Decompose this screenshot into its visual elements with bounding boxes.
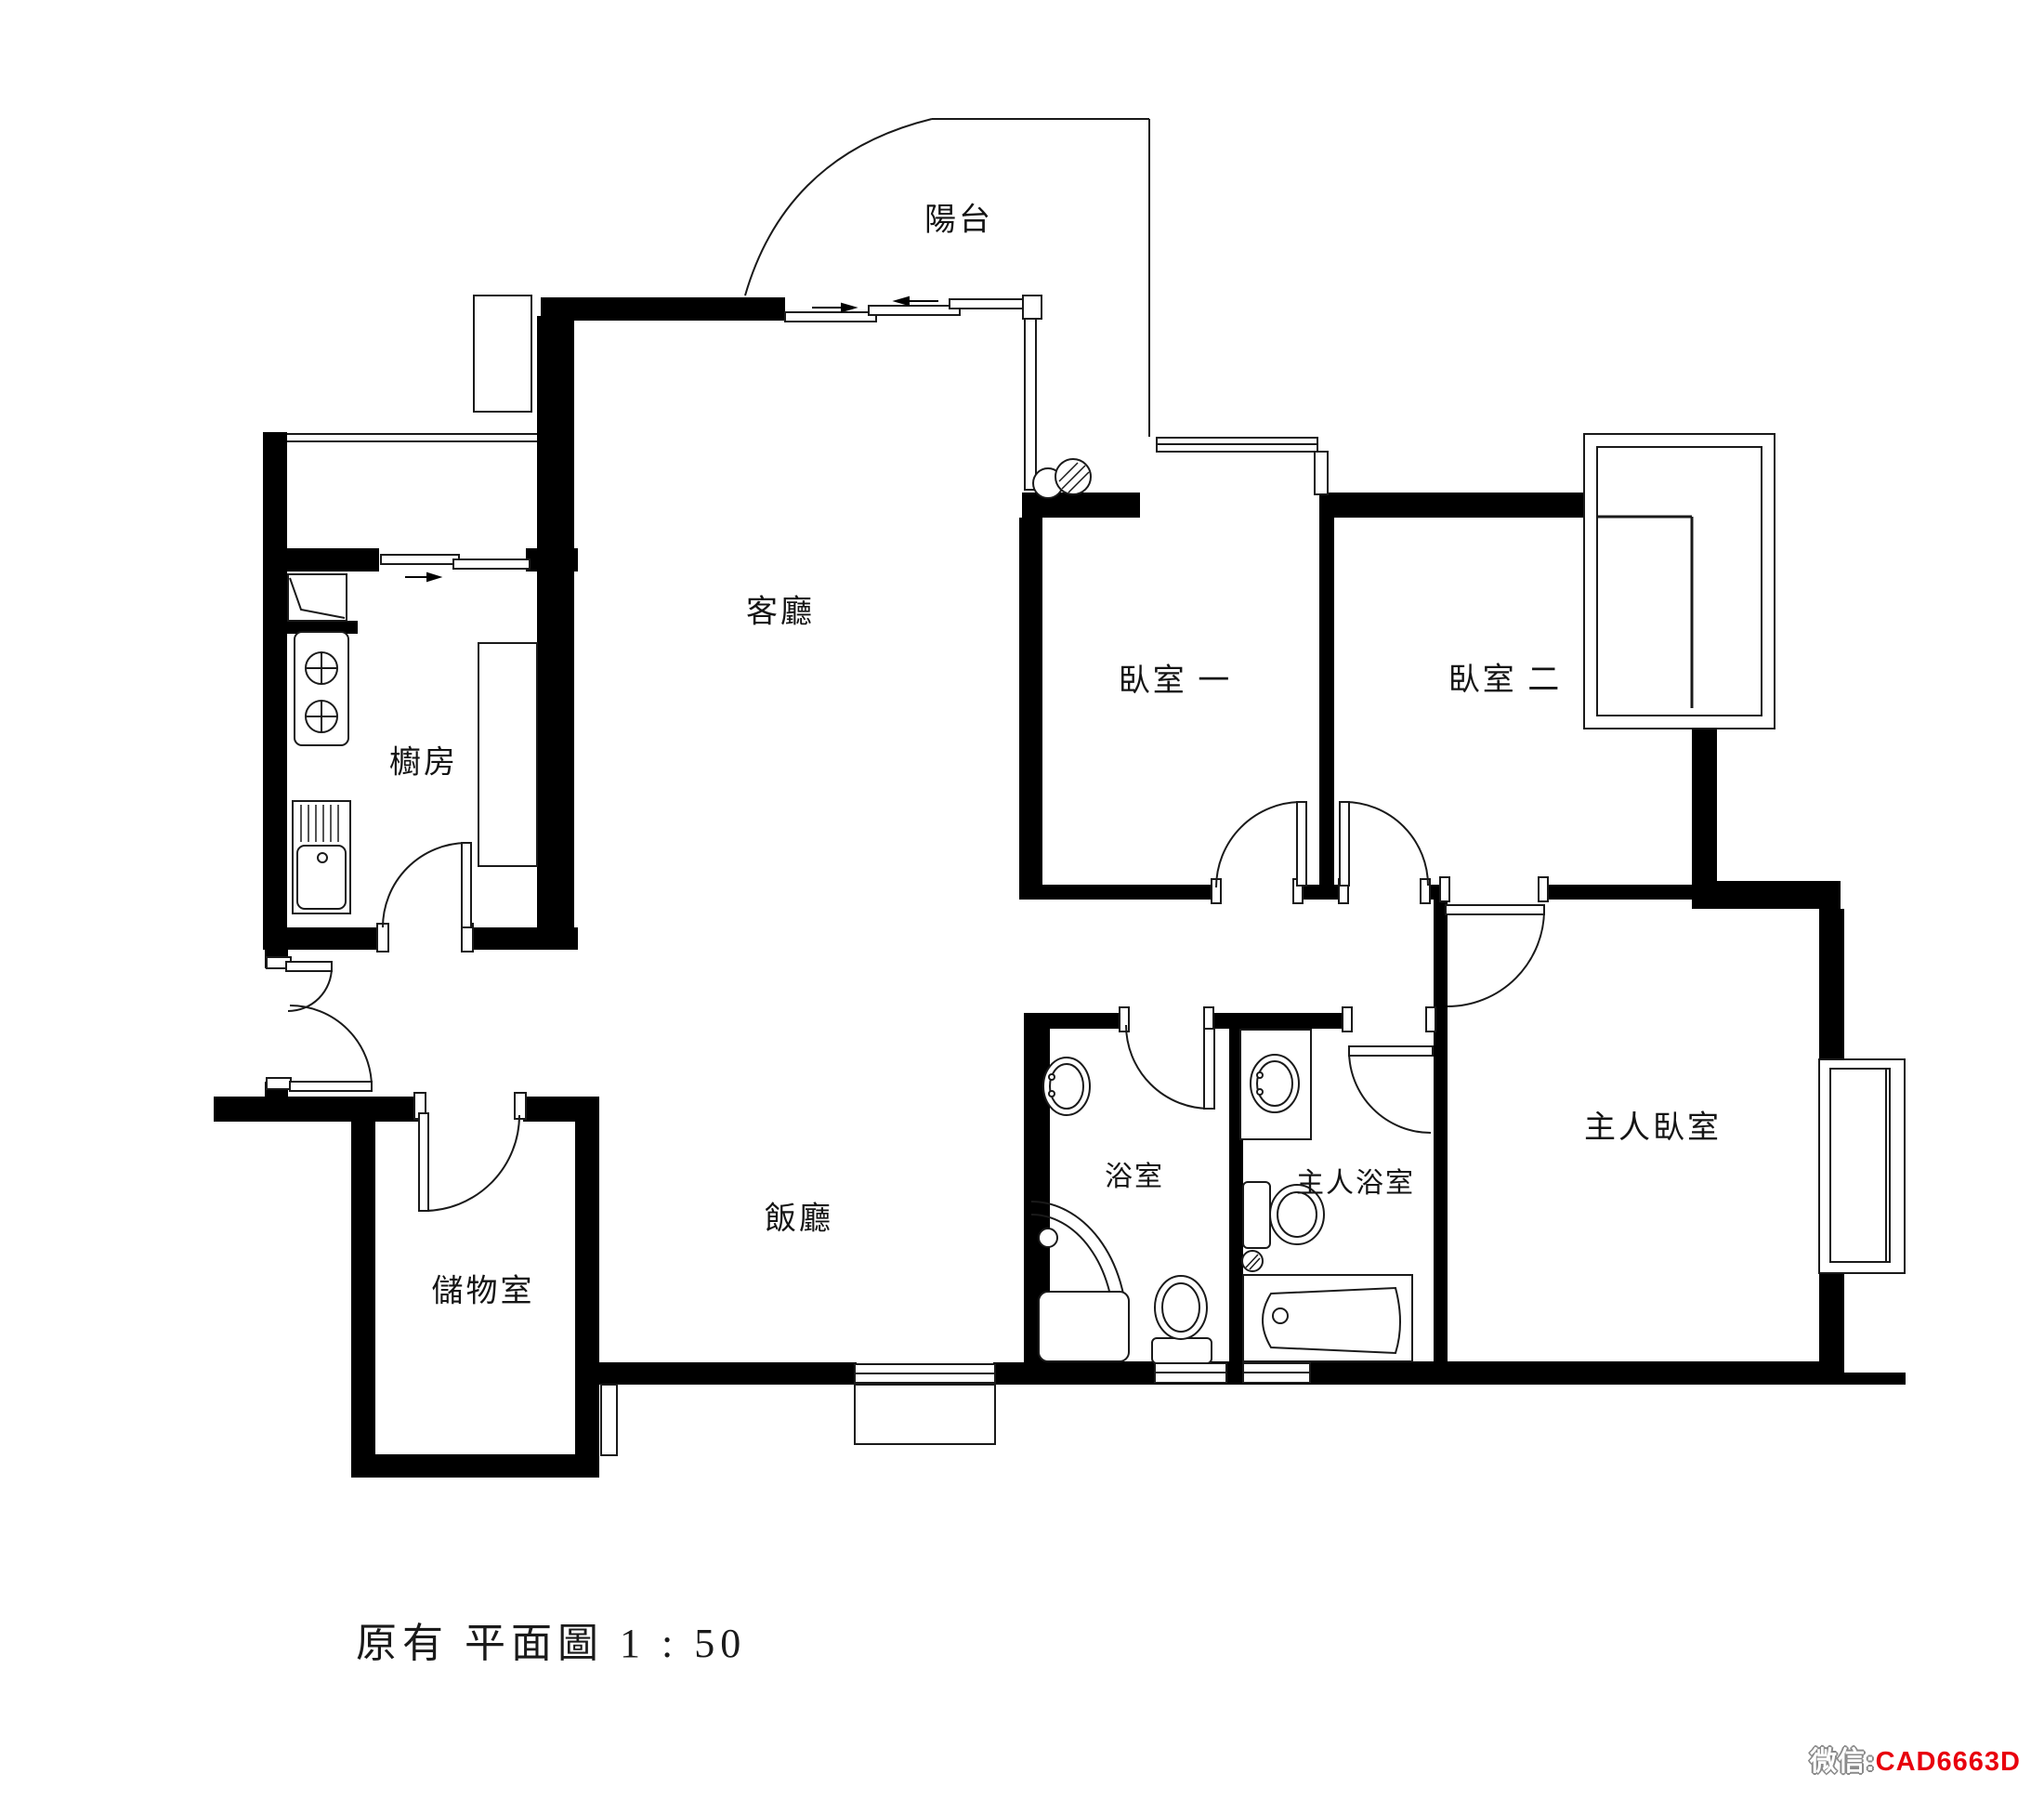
room-label-master-bedroom: 主人臥室 (1584, 1102, 1722, 1148)
arrow-left-head (896, 297, 909, 305)
wall (599, 1362, 857, 1385)
basin-tap (1257, 1072, 1263, 1078)
doors (267, 802, 1548, 1211)
bathroom-basin-inner (1050, 1064, 1083, 1109)
kitchen-window (381, 555, 459, 564)
wall (263, 548, 379, 572)
room-label-bathroom: 浴室 (1105, 1153, 1164, 1194)
kitchen-window (453, 559, 530, 569)
master-bathroom-door-leaf (1349, 1046, 1433, 1056)
master-bedroom-door-leaf (1446, 905, 1544, 914)
watermark: 微信:CAD6663D (1810, 1740, 2021, 1779)
bedroom2-door-swing (1344, 802, 1428, 886)
wall (1717, 881, 1841, 909)
wall (1319, 493, 1334, 900)
storage-step-window (601, 1385, 617, 1455)
basin-tap (1049, 1091, 1055, 1097)
bathroom-door-leaf (1204, 1029, 1214, 1109)
master-bathroom-door-swing (1349, 1051, 1431, 1133)
fixtures (288, 459, 1412, 1363)
kitchen-counter (478, 643, 537, 866)
master-bay-window (1830, 1069, 1890, 1262)
entry-door-leaf (290, 1082, 372, 1091)
arrow-right-head (842, 304, 855, 311)
ac-platform (474, 296, 531, 412)
room-label-master-bathroom: 主人浴室 (1296, 1160, 1415, 1201)
wall (1243, 1013, 1349, 1029)
bedroom2-bay-window (1597, 447, 1762, 716)
wall (1024, 1013, 1126, 1029)
dining-window-box (855, 1385, 995, 1444)
entry-door-swing (290, 1005, 372, 1087)
door-jamb (1120, 1007, 1129, 1031)
bedroom2-door-leaf (1340, 802, 1349, 886)
master-basin-inner (1257, 1061, 1292, 1106)
shower-drain (1039, 1228, 1057, 1247)
door-jamb (1440, 877, 1449, 901)
toilet-tank (1152, 1338, 1212, 1363)
balcony-sliding-panel (785, 312, 876, 322)
room-label-living: 客廳 (746, 586, 815, 632)
bedroom1-door-leaf (1297, 802, 1306, 886)
entry-door-small-leaf (286, 962, 332, 971)
wall (351, 1097, 375, 1478)
wall (1819, 1273, 1844, 1385)
watermark-code: CAD6663D (1876, 1747, 2021, 1777)
arrow-right-head (427, 573, 439, 581)
bathroom-door-swing (1126, 1025, 1210, 1109)
wall (214, 1097, 423, 1122)
wall (1819, 909, 1844, 1059)
room-label-balcony: 陽台 (924, 194, 993, 240)
door-jamb (377, 924, 388, 952)
storage-door-leaf (419, 1113, 428, 1211)
wall (1692, 708, 1717, 909)
storage-door-swing (424, 1115, 519, 1211)
balcony-outline (745, 119, 1149, 437)
room-label-dining: 飯廳 (765, 1193, 833, 1239)
wall (537, 316, 574, 950)
master-toilet-tank (1243, 1182, 1270, 1248)
wall (1019, 518, 1042, 886)
master-bedroom-door-swing (1448, 910, 1544, 1006)
kitchen-door-leaf (462, 843, 471, 927)
bedroom1-door-swing (1216, 802, 1302, 887)
wall (993, 1362, 1051, 1385)
bathtub-drain (1273, 1308, 1288, 1323)
floor-plan-drawing (0, 0, 2044, 1800)
door-jamb (1343, 1007, 1352, 1031)
balcony-curve (745, 119, 932, 296)
wall (1544, 885, 1717, 900)
basin-tap (1049, 1074, 1055, 1080)
room-label-bedroom1: 臥室 一 (1119, 655, 1233, 701)
balcony-sliding-panel (950, 299, 1033, 309)
floor-plan: 陽台 客廳 臥室 一 臥室 二 櫥房 浴室 主人浴室 主人臥室 飯廳 儲物室 原… (0, 0, 2044, 1800)
window-corner (1023, 296, 1042, 319)
bedroom1-window (1315, 452, 1328, 494)
room-label-kitchen: 櫥房 (389, 737, 458, 782)
basin-tap (1257, 1089, 1263, 1095)
room-label-storage: 儲物室 (432, 1266, 535, 1311)
door-jamb (515, 1093, 526, 1119)
living-side-window (1025, 319, 1036, 490)
sink-faucet (318, 853, 327, 862)
door-jamb (267, 1078, 291, 1089)
kitchen-door-swing (383, 843, 466, 927)
balcony-sliding-panel (869, 306, 960, 315)
room-label-bedroom2: 臥室 二 (1448, 654, 1563, 700)
wall (351, 1454, 599, 1478)
wall (541, 297, 785, 321)
watermark-prefix: 微信: (1810, 1747, 1876, 1777)
wall (469, 927, 578, 950)
door-jamb (1426, 1007, 1435, 1031)
plan-title: 原有 平面圖 1 : 50 (356, 1609, 746, 1669)
wall (1329, 493, 1591, 518)
toilet-bowl-inner (1162, 1283, 1199, 1332)
entry-door-small-swing (288, 967, 332, 1011)
wall (575, 1097, 599, 1456)
door-jamb (1539, 877, 1548, 901)
shower-tray (1039, 1292, 1129, 1361)
wall (1434, 885, 1448, 1363)
wall (1019, 885, 1218, 900)
